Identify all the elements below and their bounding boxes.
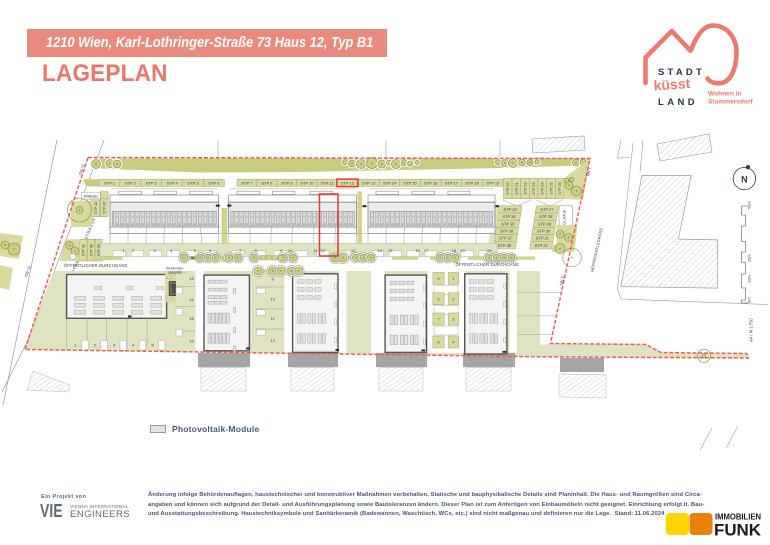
svg-text:STP 41: STP 41 [82, 244, 86, 256]
svg-text:19: 19 [460, 248, 465, 253]
svg-text:18: 18 [451, 248, 456, 253]
svg-text:ÖFFENTLICHER DURCHGANG: ÖFFENTLICHER DURCHGANG [456, 262, 520, 267]
svg-text:STP 29: STP 29 [538, 221, 553, 226]
svg-text:15: 15 [388, 248, 393, 253]
svg-text:STP 11: STP 11 [321, 180, 335, 185]
svg-text:STP 23: STP 23 [532, 182, 536, 194]
svg-text:16: 16 [189, 339, 194, 344]
svg-text:STP 8: STP 8 [261, 180, 273, 185]
svg-text:STP 12: STP 12 [341, 180, 355, 185]
svg-text:A4 / M 1:750: A4 / M 1:750 [749, 318, 754, 342]
svg-text:20m: 20m [747, 254, 752, 262]
svg-text:STP 9: STP 9 [281, 180, 293, 185]
svg-text:16: 16 [415, 248, 420, 253]
svg-text:STP 31: STP 31 [535, 236, 550, 241]
svg-text:12: 12 [321, 248, 326, 253]
svg-text:STP 40: STP 40 [89, 244, 93, 256]
svg-text:STP 2: STP 2 [125, 180, 137, 185]
svg-text:HERRENHOLZGASSE: HERRENHOLZGASSE [589, 227, 603, 272]
svg-text:N: N [741, 174, 748, 184]
svg-text:STP 25: STP 25 [549, 182, 553, 194]
svg-text:13: 13 [351, 248, 356, 253]
svg-text:STP 10: STP 10 [300, 180, 314, 185]
svg-text:12: 12 [270, 338, 275, 343]
svg-text:STP 35: STP 35 [501, 221, 516, 226]
svg-text:ÖFFENTLICHER DURCHGANG: ÖFFENTLICHER DURCHGANG [64, 263, 128, 268]
svg-text:Wohnen in: Wohnen in [708, 91, 742, 98]
svg-text:STP 42: STP 42 [94, 202, 98, 214]
svg-text:STP 22: STP 22 [523, 182, 527, 194]
svg-text:STP 36: STP 36 [500, 229, 515, 234]
svg-text:ON 7: ON 7 [586, 167, 592, 177]
svg-text:STP 30: STP 30 [536, 229, 551, 234]
svg-text:ON 5: ON 5 [559, 276, 565, 286]
svg-text:STP 43: STP 43 [103, 202, 107, 214]
svg-text:STP 21: STP 21 [515, 182, 519, 194]
svg-text:50m: 50m [747, 201, 752, 209]
svg-text:STP 37: STP 37 [499, 236, 514, 241]
svg-text:LAND: LAND [658, 97, 698, 108]
svg-text:ON 73: ON 73 [24, 266, 32, 278]
svg-text:STP 24: STP 24 [541, 182, 545, 194]
svg-text:STP 33: STP 33 [503, 207, 518, 212]
svg-text:STP 5: STP 5 [188, 180, 200, 185]
svg-text:13: 13 [189, 276, 194, 281]
svg-text:14: 14 [377, 248, 382, 253]
svg-text:10: 10 [270, 296, 275, 301]
svg-text:STP 26: STP 26 [558, 182, 562, 194]
svg-text:FUNK: FUNK [714, 521, 762, 540]
svg-text:20: 20 [487, 248, 492, 253]
svg-text:Müllplatz: Müllplatz [84, 194, 98, 198]
svg-text:STP 6: STP 6 [208, 180, 220, 185]
svg-text:STP 34: STP 34 [502, 214, 517, 219]
svg-text:küsst: küsst [653, 75, 691, 94]
svg-text:STP 13: STP 13 [362, 180, 376, 185]
svg-text:14: 14 [189, 297, 194, 302]
svg-text:STP 20: STP 20 [506, 182, 510, 194]
svg-text:STP 16: STP 16 [424, 180, 438, 185]
svg-text:STP 38: STP 38 [497, 243, 512, 248]
svg-text:STP 4: STP 4 [167, 180, 179, 185]
svg-text:MÜLLRAUM: MÜLLRAUM [563, 209, 567, 227]
svg-text:Stammersdorf: Stammersdorf [708, 99, 754, 106]
svg-text:STP 3: STP 3 [146, 180, 158, 185]
svg-text:STP 19: STP 19 [486, 180, 500, 185]
svg-text:STP 17: STP 17 [445, 180, 459, 185]
svg-text:STP 18: STP 18 [465, 180, 479, 185]
svg-text:STP 1: STP 1 [104, 180, 116, 185]
svg-text:10m: 10m [747, 275, 752, 283]
svg-text:STP 32: STP 32 [534, 243, 549, 248]
svg-text:10: 10 [288, 248, 293, 253]
svg-text:0m: 0m [747, 297, 752, 303]
svg-text:STP 7: STP 7 [241, 180, 253, 185]
svg-text:STP 27: STP 27 [540, 207, 555, 212]
svg-text:17: 17 [424, 248, 429, 253]
svg-text:STP 14: STP 14 [383, 180, 397, 185]
svg-text:15: 15 [189, 316, 194, 321]
svg-text:STP 28: STP 28 [539, 214, 554, 219]
svg-text:STP 15: STP 15 [403, 180, 417, 185]
